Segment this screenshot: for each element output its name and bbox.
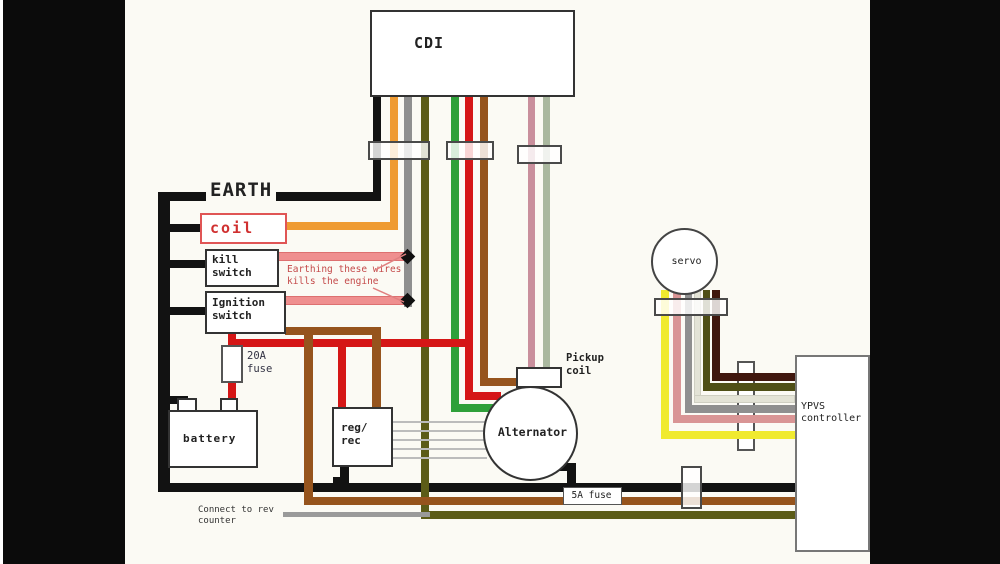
regrec-box: reg/ rec bbox=[332, 407, 393, 467]
left-black-bar bbox=[3, 0, 125, 564]
pickup-sage-wire bbox=[543, 95, 550, 368]
kill-switch-box: kill switch bbox=[205, 249, 279, 287]
rev-counter-note: Connect to rev counter bbox=[198, 505, 282, 527]
rev-counter-wire bbox=[283, 512, 430, 517]
alternator-label: Alternator bbox=[485, 425, 580, 439]
battery-box: battery bbox=[168, 410, 258, 468]
red-wire-to-alternator bbox=[465, 392, 501, 400]
brown-wire-ignition-horizontal bbox=[285, 327, 381, 335]
fuse-5a-box: 5A fuse bbox=[563, 487, 622, 505]
regrec-earth-junction bbox=[333, 477, 349, 488]
pickup-coil-box bbox=[516, 367, 562, 388]
earth-label: EARTH bbox=[206, 179, 276, 202]
brown-wire-left-vertical bbox=[304, 335, 313, 505]
ypvs-controller-label: YPVS controller bbox=[801, 401, 867, 425]
stator-lead-1 bbox=[393, 421, 487, 423]
pickup-pink-wire bbox=[528, 95, 535, 368]
cdi-connector-right bbox=[517, 145, 562, 164]
earth-stub-kill-switch bbox=[170, 260, 205, 268]
brown-wire-to-alternator bbox=[480, 378, 520, 386]
stator-lead-4 bbox=[393, 448, 487, 450]
ignition-switch-box: Ignition switch bbox=[205, 291, 286, 334]
stator-lead-3 bbox=[393, 439, 487, 441]
coil-label: coil bbox=[210, 219, 254, 237]
cdi-label: CDI bbox=[414, 34, 444, 52]
brown-wire-vertical-cdi bbox=[480, 95, 488, 386]
orange-wire-to-coil bbox=[285, 222, 398, 230]
servo-yellow-h bbox=[661, 431, 795, 439]
fuse-20a-label: 20A fuse bbox=[247, 350, 283, 376]
servo-label: servo bbox=[653, 256, 720, 268]
brown-wire-bottom bbox=[304, 497, 795, 505]
regrec-label: reg/ rec bbox=[341, 421, 381, 448]
wiring-diagram: CDI EARTH coil kill switch Ignition swit… bbox=[0, 0, 1000, 564]
pickup-coil-label: Pickup coil bbox=[566, 352, 614, 378]
servo-olive-h bbox=[703, 383, 795, 391]
fuse-20a-body bbox=[221, 345, 243, 383]
alternator-circle: Alternator bbox=[483, 386, 578, 481]
red-wire-main-horizontal bbox=[228, 339, 473, 347]
servo-circle: servo bbox=[651, 228, 718, 295]
green-wire-to-alternator bbox=[451, 404, 493, 412]
earth-stub-ignition-switch bbox=[170, 307, 205, 315]
olive-wire-bottom bbox=[421, 511, 795, 519]
cdi-box: CDI bbox=[370, 10, 575, 97]
brown-wire-to-regrec bbox=[372, 335, 381, 408]
ignition-switch-label: Ignition switch bbox=[212, 296, 282, 323]
servo-pink-h bbox=[673, 415, 795, 423]
stator-lead-5 bbox=[393, 457, 487, 459]
ypvs-controller-box: YPVS controller bbox=[795, 355, 870, 552]
right-black-bar bbox=[870, 0, 1000, 564]
coil-box: coil bbox=[200, 213, 287, 244]
servo-maroon-h bbox=[712, 373, 795, 381]
battery-label: battery bbox=[183, 432, 236, 445]
earth-stub-coil bbox=[170, 224, 200, 232]
servo-gray-h bbox=[685, 405, 795, 413]
cdi-connector-left bbox=[368, 141, 430, 160]
servo-white-h bbox=[694, 395, 795, 403]
warning-arrows bbox=[368, 240, 412, 310]
stator-lead-2 bbox=[393, 430, 487, 432]
red-wire-to-regrec bbox=[338, 347, 346, 408]
kill-switch-label: kill switch bbox=[212, 253, 270, 280]
bottom-connector bbox=[681, 466, 702, 509]
cdi-connector-middle bbox=[446, 141, 494, 160]
fuse-5a-label: 5A fuse bbox=[564, 490, 619, 502]
orange-wire-vertical bbox=[390, 95, 398, 228]
servo-connector bbox=[654, 298, 728, 316]
